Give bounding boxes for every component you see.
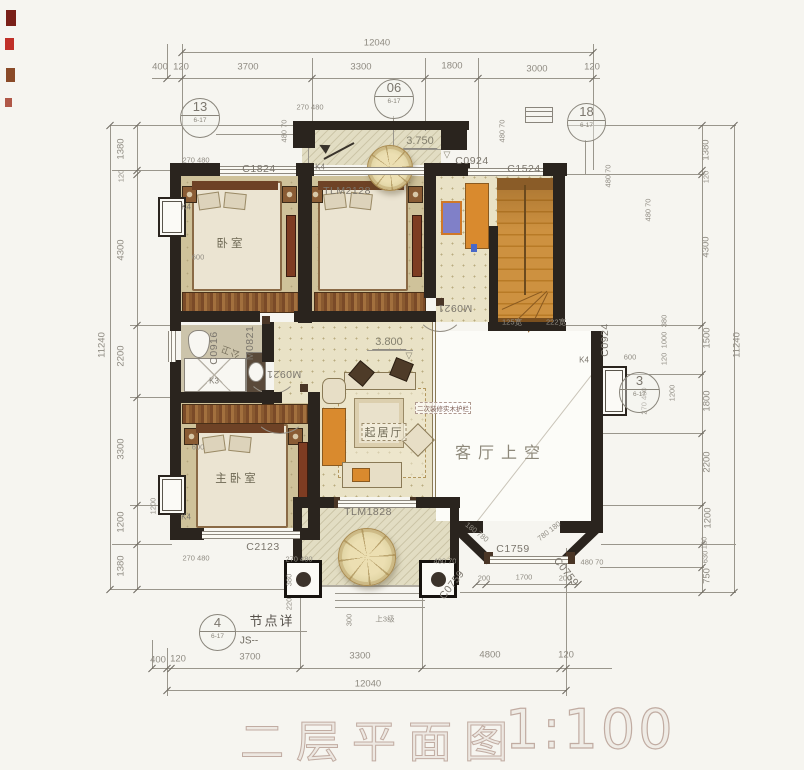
dim-label: 480 70 [280,120,289,143]
bed-headboard [192,181,278,190]
dim-line [167,690,566,691]
dim-label: 120 [702,171,711,184]
axis-bubble: 136-17 [180,98,220,138]
exterior-step-line [335,593,425,594]
drawing-scale: 1:100 [505,698,676,761]
dim-label: 3300 [350,62,371,73]
dim-label: 120 [170,654,186,665]
dim-label: 120 [117,170,126,183]
axis-bubble-sheet: 6-17 [633,390,646,400]
dim-label: 120 [700,537,709,550]
dim-line [563,325,704,326]
dim-line [300,592,301,668]
pillow [197,192,221,211]
axis-bubble-number: 13 [181,99,219,116]
room-name: 客厅上空 [455,439,547,463]
dim-label: 3700 [237,62,258,73]
axis-bubble: 186-17 [567,103,606,142]
dim-overall-bottom: 12040 [355,679,381,690]
hall-rug [441,201,462,235]
wardrobe [182,292,300,313]
stair-stringer [524,185,526,295]
opening-code-label: K4 [579,356,589,365]
window [202,531,300,539]
dim-line [112,544,172,545]
wall [170,163,181,199]
door-jamb [300,384,308,392]
axis-bubble-number: 3 [620,373,659,390]
dim-overall-left: 11240 [97,332,108,358]
dim-line [603,433,704,434]
dim-label: 4300 [116,239,127,260]
dim-label: 1000 [660,332,669,349]
dim-line [152,668,612,669]
dim-label: 380 [660,315,669,328]
dim-label: 600 [192,443,205,452]
axis-bubble: 36-17 [619,372,660,413]
dim-label: 1200 [116,511,127,532]
wall [591,331,603,533]
drawing-title: 二层平面图 [240,706,520,770]
exterior-step-line [335,607,425,608]
wall [293,121,315,148]
dim-label: 1200 [149,498,158,515]
dim-label: 1380 [116,138,127,159]
dim-label: 480 70 [581,558,604,567]
tv-cabinet [322,408,346,466]
dim-line [152,78,600,79]
dim-line [235,631,307,632]
wall [424,163,436,298]
bed-symbol-icon [525,107,553,123]
dim-label: 630 [701,551,710,564]
opening-code-label: M0921 [267,368,302,380]
room-name: 主卧室 [215,470,259,486]
dim-label: 120 [584,62,600,73]
wall [553,163,565,331]
dim-line [478,58,479,170]
dim-label: 750 [702,568,713,584]
dim-label: 480 70 [644,199,653,222]
note-label: 上3级 [375,614,394,625]
dim-label: 220 [285,598,294,611]
cabinet-detail [471,244,477,252]
dim-label: 400 [152,62,168,73]
dim-line [585,140,586,174]
wall [170,528,204,540]
note-label: 二次装修实木护栏 [415,402,471,414]
dim-label: 270 480 [296,103,323,112]
dim-label: 120 [558,650,574,661]
opening-code-label: C0924 [455,155,488,167]
opening-code-label: C2123 [246,541,279,553]
opening-code-label: C1524 [507,163,540,175]
axis-bubble-number: 18 [568,104,605,121]
wall [489,226,498,326]
opening-code-label: K4 [315,163,325,172]
dim-line [600,567,704,568]
dim-label: 1380 [116,555,127,576]
dim-line [601,544,736,545]
wall [262,322,274,362]
scan-mark [6,68,15,82]
dim-label: 120 [173,62,189,73]
opening-code-label: K4 [181,513,191,522]
floorplan-sheet: 1204040012037003300180030001204001203700… [0,0,804,770]
dim-label: 600 [624,353,637,362]
dim-label: 1200 [668,385,677,402]
wall [294,311,312,322]
dim-line [476,584,578,585]
wall [298,163,312,323]
dim-label: 480 70 [604,165,613,188]
axis-bubble: 066-17 [374,79,414,119]
scan-mark [5,38,14,50]
note-label: 节点详 [249,611,294,630]
wall [312,311,436,322]
pillow [228,435,252,453]
opening-code-label: K3 [209,377,219,386]
dim-label: 200 [478,574,491,583]
dim-label: 270 480 [182,554,209,563]
wall [170,311,260,322]
level-marker: ▽ [444,150,451,161]
dim-label: 3300 [116,438,127,459]
window [168,331,176,362]
nightstand [408,186,423,203]
wardrobe [314,292,426,313]
wall [170,392,282,403]
scan-mark [5,98,12,107]
dim-overall-right: 11240 [732,332,743,358]
sofa-bottom [342,462,402,488]
dresser [412,215,422,277]
dim-label: 1500 [702,327,713,348]
opening-code-label: K4 [181,203,191,212]
axis-bubble-number: 4 [200,615,235,632]
note-label: JS-- [240,636,258,647]
dim-label: 480 70 [434,557,457,566]
room-name: 卧室 [217,235,246,251]
exterior-step-line [335,600,425,601]
dim-line [137,125,138,589]
axis-bubble-sheet: 6-17 [580,121,593,131]
room-name: 起居厅 [362,423,407,441]
dim-line [182,52,593,53]
axis-bubble: 46-17 [199,614,236,651]
dim-label: 3300 [349,651,370,662]
opening-code-label: M0921 [438,302,473,314]
opening-code-label: TLM2128 [323,185,371,197]
dim-label: 2200 [702,451,713,472]
axis-bubble-number: 06 [375,80,413,97]
opening-code-label: C1759 [496,543,529,555]
dim-line [734,125,735,592]
opening-code-label: C0916 [208,331,220,364]
pillow [223,192,247,210]
dim-label: 1380 [701,139,712,160]
dresser [298,442,308,499]
dim-label: 300 [345,614,354,627]
dim-label: 2200 [116,345,127,366]
sofa-throw [352,468,370,482]
dim-label: 4800 [479,650,500,661]
level-marker: 3.800 [372,336,406,350]
opening-code-label: M0821 [244,326,256,361]
door-jamb [262,316,270,324]
nightstand [282,186,297,203]
dim-label: 780 180 [536,519,563,543]
dim-line [565,174,704,175]
axis-bubble-sheet: 6-17 [193,116,206,126]
dim-label: 270 480 [182,156,209,165]
dim-label: 400 [150,655,166,666]
dim-line [460,592,736,593]
balcony-fan-motif [338,528,396,586]
wall [170,360,181,475]
opening-code-label: C0924 [599,323,611,356]
dim-label: 600 [192,253,205,262]
wall [441,121,467,150]
opening-code-label: TLM1828 [344,506,392,518]
axis-bubble-sheet: 6-17 [387,97,400,107]
dim-label: 222宽 [546,317,566,328]
dim-label: 1200 [703,507,714,528]
level-marker: 3.750 [403,135,437,149]
opening-code-label: C1824 [242,163,275,175]
dim-label: 480 70 [498,120,507,143]
dim-label: 3700 [239,652,260,663]
living-void-area [436,331,591,521]
dim-line [422,592,423,668]
dim-label: 3000 [526,64,547,75]
pillow [202,435,226,454]
dim-label: 270 480 [285,555,312,564]
armchair [322,378,346,404]
window [314,167,424,175]
scan-mark [6,10,16,26]
dim-label: 1800 [702,390,713,411]
dim-label: 125宽 [502,317,522,328]
hall-cabinet [465,183,489,249]
axis-bubble-sheet: 6-17 [211,632,224,642]
k-window [158,475,186,515]
level-marker: ▽ [406,351,413,362]
dim-overall-top: 12040 [364,38,390,49]
dresser [286,215,296,277]
dim-line [110,125,111,589]
dim-line [603,505,704,506]
wall [308,392,320,540]
dim-label: 1800 [441,61,462,72]
dim-label: 1700 [516,573,533,582]
dim-label: 120 [660,353,669,366]
dim-label: 4300 [701,236,712,257]
dim-label: 380 [285,574,294,587]
